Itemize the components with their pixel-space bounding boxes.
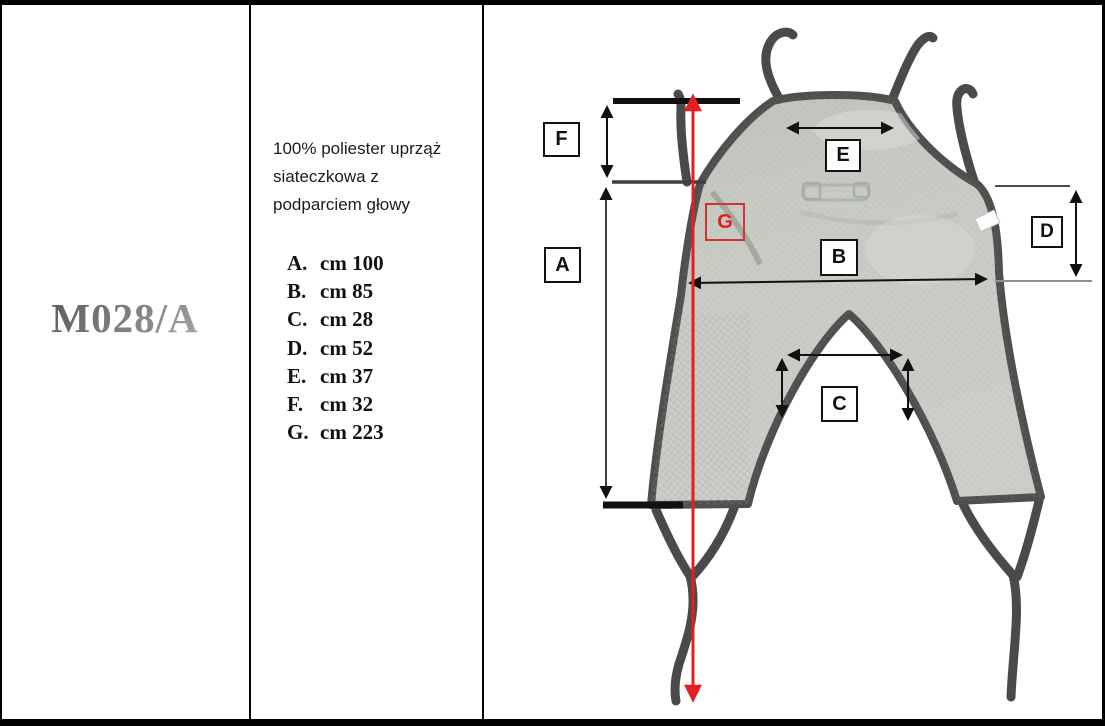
dim-label-D: D: [1031, 216, 1063, 248]
dim-label-B: B: [820, 239, 858, 276]
measurement-letter: B.: [287, 279, 320, 304]
description-line-3: podparciem głowy: [273, 191, 479, 219]
measurement-row-d: D. cm 52: [287, 334, 384, 362]
measurement-value: cm 100: [320, 251, 384, 276]
measurement-letter: A.: [287, 251, 320, 276]
dim-label-F: F: [543, 122, 580, 157]
column-divider-1: [249, 5, 251, 719]
measurement-row-a: A. cm 100: [287, 249, 384, 277]
measurement-row-b: B. cm 85: [287, 277, 384, 305]
measurement-letter: C.: [287, 307, 320, 332]
table-border-bottom: [0, 719, 1105, 726]
dim-label-E: E: [825, 139, 861, 172]
sling-diagram: [0, 0, 1105, 726]
measurement-value: cm 28: [320, 307, 373, 332]
shoulder-strap-left: [678, 94, 687, 182]
measurement-row-e: E. cm 37: [287, 362, 384, 390]
measurement-value: cm 223: [320, 420, 384, 445]
dim-label-G: G: [705, 203, 745, 241]
column-divider-2: [482, 5, 484, 719]
table-border-top: [0, 0, 1105, 5]
dim-label-A: A: [544, 247, 581, 283]
measurement-value: cm 32: [320, 392, 373, 417]
measurement-row-f: F. cm 32: [287, 390, 384, 418]
measurement-value: cm 37: [320, 364, 373, 389]
measurement-value: cm 85: [320, 279, 373, 304]
measurement-letter: F.: [287, 392, 320, 417]
dim-label-C: C: [821, 386, 858, 422]
measurement-letter: D.: [287, 336, 320, 361]
table-border-left: [0, 0, 2, 726]
measurement-letter: E.: [287, 364, 320, 389]
description-line-2: siateczkowa z: [273, 163, 479, 191]
product-description: 100% poliester uprząż siateczkowa z podp…: [273, 135, 479, 219]
product-code: M028/A: [0, 294, 250, 342]
measurement-value: cm 52: [320, 336, 373, 361]
measurement-letter: G.: [287, 420, 320, 445]
head-strap-right: [892, 36, 933, 100]
description-line-1: 100% poliester uprząż: [273, 135, 479, 163]
measurement-row-c: C. cm 28: [287, 306, 384, 334]
shoulder-strap-right: [957, 89, 974, 181]
head-strap-left: [766, 32, 793, 100]
measurement-row-g: G. cm 223: [287, 419, 384, 447]
measurement-list: A. cm 100 B. cm 85 C. cm 28 D. cm 52 E. …: [287, 249, 384, 447]
leg-strap-right: [963, 501, 1039, 697]
spec-sheet: F A E G B D C M028/A 100% poliester uprz…: [0, 0, 1105, 726]
leg-strap-left: [656, 508, 734, 701]
